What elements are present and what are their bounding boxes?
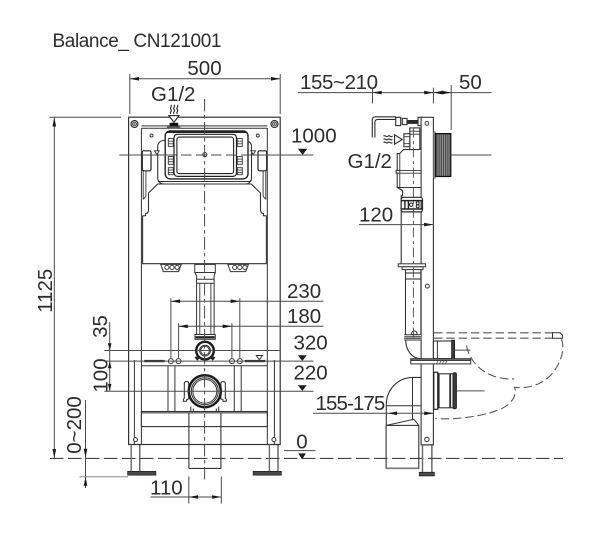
svg-text:320: 320 <box>294 332 328 355</box>
svg-text:220: 220 <box>294 361 328 384</box>
svg-text:110: 110 <box>150 477 183 500</box>
svg-text:35: 35 <box>89 315 112 338</box>
svg-text:50: 50 <box>459 71 482 94</box>
svg-text:155~210: 155~210 <box>300 71 378 94</box>
svg-text:100: 100 <box>89 358 112 392</box>
svg-text:1000: 1000 <box>291 125 337 148</box>
svg-text:500: 500 <box>187 57 221 80</box>
svg-text:G1/2: G1/2 <box>151 83 195 106</box>
svg-text:1125: 1125 <box>34 269 57 313</box>
svg-text:230: 230 <box>287 280 321 303</box>
svg-text:155-175: 155-175 <box>316 392 385 415</box>
svg-text:Balance_ CN121001: Balance_ CN121001 <box>53 31 222 52</box>
svg-text:G1/2: G1/2 <box>348 150 392 173</box>
svg-text:180: 180 <box>287 305 321 328</box>
svg-text:0~200: 0~200 <box>63 396 86 454</box>
svg-text:120: 120 <box>359 203 393 226</box>
